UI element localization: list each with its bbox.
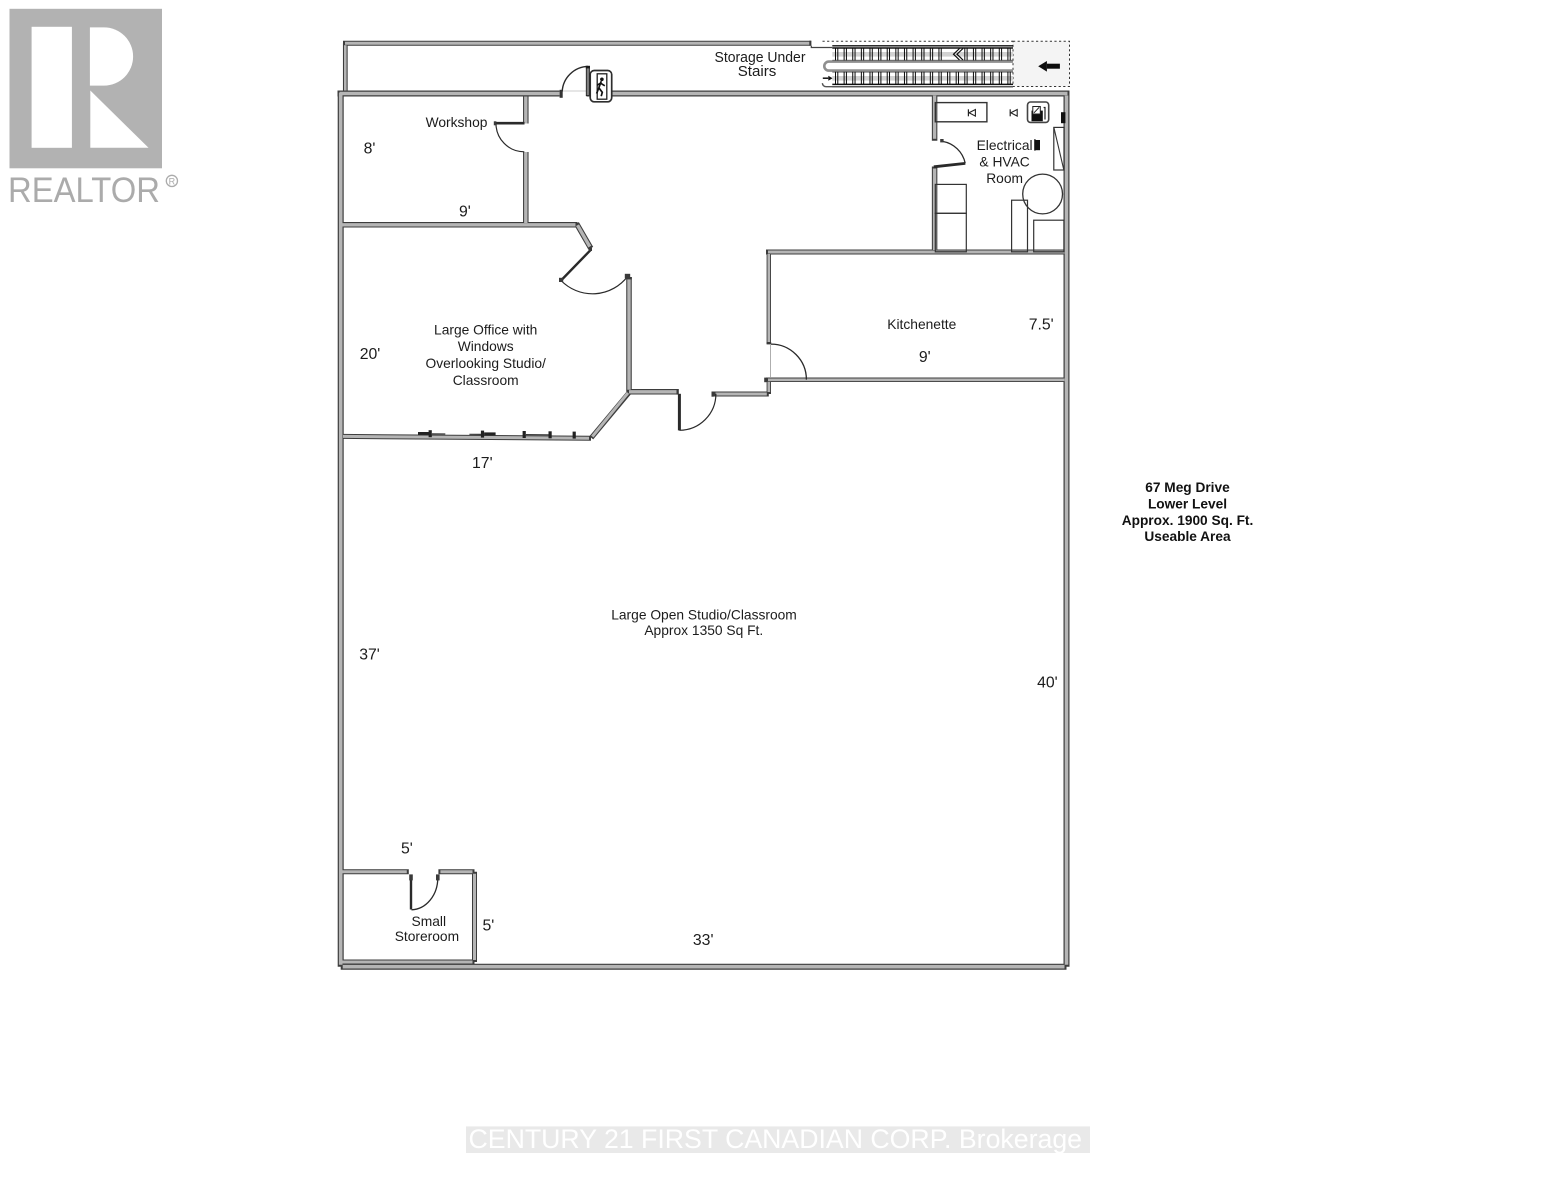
svg-text:17': 17' — [472, 455, 493, 472]
svg-text:Workshop: Workshop — [426, 115, 488, 130]
svg-text:R: R — [169, 176, 176, 186]
svg-text:Overlooking Studio/: Overlooking Studio/ — [425, 356, 546, 371]
svg-text:& HVAC: & HVAC — [979, 155, 1029, 170]
svg-text:REALTOR: REALTOR — [8, 171, 160, 210]
svg-text:Large Open Studio/Classroom: Large Open Studio/Classroom — [611, 608, 797, 623]
svg-text:Approx. 1900 Sq. Ft.: Approx. 1900 Sq. Ft. — [1122, 513, 1254, 528]
svg-text:Lower Level: Lower Level — [1148, 496, 1227, 511]
svg-text:Room: Room — [986, 171, 1023, 186]
svg-text:Useable Area: Useable Area — [1144, 529, 1231, 544]
svg-text:8': 8' — [364, 141, 376, 158]
svg-text:9': 9' — [919, 349, 931, 366]
svg-text:20': 20' — [360, 346, 381, 363]
svg-text:5': 5' — [482, 918, 494, 935]
svg-text:67 Meg Drive: 67 Meg Drive — [1145, 480, 1230, 495]
svg-text:7.5': 7.5' — [1029, 316, 1054, 333]
svg-text:37': 37' — [359, 647, 380, 664]
svg-text:5': 5' — [401, 841, 413, 858]
svg-text:CENTURY 21 FIRST CANADIAN CORP: CENTURY 21 FIRST CANADIAN CORP. Brokerag… — [469, 1124, 1083, 1154]
svg-text:9': 9' — [459, 204, 471, 221]
svg-text:Small: Small — [412, 914, 447, 929]
svg-text:Classroom: Classroom — [453, 373, 519, 388]
svg-text:Approx 1350 Sq Ft.: Approx 1350 Sq Ft. — [644, 623, 763, 638]
svg-text:Storeroom: Storeroom — [395, 929, 459, 944]
svg-text:Kitchenette: Kitchenette — [887, 317, 956, 332]
svg-text:Stairs: Stairs — [738, 63, 777, 80]
svg-text:Electrical: Electrical — [977, 138, 1033, 153]
svg-text:Large Office with: Large Office with — [434, 322, 537, 337]
svg-text:33': 33' — [693, 932, 714, 949]
svg-text:40': 40' — [1037, 674, 1058, 691]
svg-text:Windows: Windows — [458, 339, 514, 354]
